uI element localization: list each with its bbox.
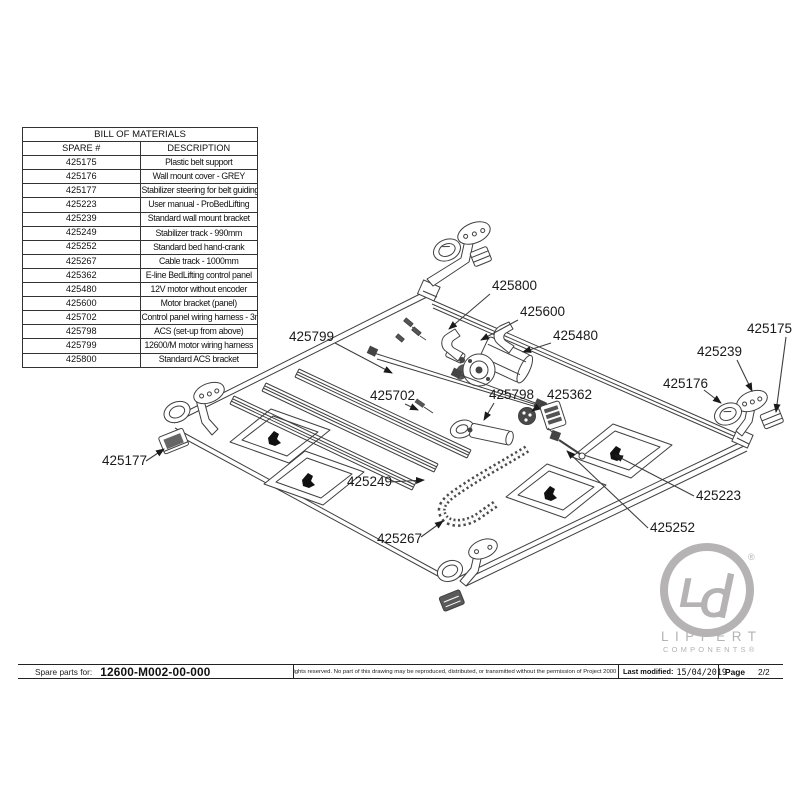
callout-425600: 425600 (520, 304, 565, 319)
screws (396, 318, 426, 342)
leader-line-425175 (776, 337, 786, 412)
exploded-diagram: 4257994258004256004254804257024257984253… (0, 0, 800, 800)
acs-assembly (448, 417, 515, 446)
title-block-footer: Spare parts for: 12600-M002-00-000 All r… (18, 664, 783, 679)
logo-subwordmark: COMPONENTS® (663, 645, 757, 654)
wall-mount-right (711, 386, 784, 436)
callout-425480: 425480 (553, 328, 598, 343)
leader-line-425239 (737, 360, 752, 391)
callout-425176: 425176 (663, 376, 708, 391)
callout-425362: 425362 (547, 387, 592, 402)
callout-425249: 425249 (347, 474, 392, 489)
leader-line-425177 (146, 449, 164, 461)
callout-425177: 425177 (102, 453, 147, 468)
wall-mount-bottom (434, 535, 500, 612)
hand-crank (548, 428, 585, 459)
callout-425702: 425702 (370, 388, 415, 403)
bed-panel-3 (506, 464, 606, 518)
leader-line-425176 (704, 390, 721, 403)
logo-wordmark: LIPPERT (661, 629, 763, 644)
page-label: Page (725, 667, 745, 677)
leader-line-425798 (484, 403, 494, 420)
spare-parts-for-label: Spare parts for: (35, 667, 92, 677)
leader-line-425702 (405, 404, 418, 410)
callout-425252: 425252 (650, 520, 695, 535)
last-modified-label: Last modified: (623, 667, 674, 676)
page-section: Page 2/2 (718, 665, 783, 678)
callout-425799: 425799 (289, 329, 334, 344)
rights-notice: All rights reserved. No part of this dra… (293, 665, 618, 678)
callout-425267: 425267 (377, 531, 422, 546)
callout-425798: 425798 (489, 387, 534, 402)
control-harness-screw (414, 398, 433, 413)
callout-425239: 425239 (697, 344, 742, 359)
logo-registered-mark: ® (748, 552, 755, 562)
last-modified-section: Last modified: 15/04/2019 (618, 665, 718, 678)
leader-line-425267 (421, 521, 443, 537)
lippert-logo: L C ® LIPPERT COMPONENTS® (661, 547, 763, 654)
spare-parts-drawing-page: BILL OF MATERIALS SPARE # DESCRIPTION 42… (0, 0, 800, 800)
page-number: 2/2 (758, 667, 770, 677)
cable-track-chain (442, 449, 527, 523)
wall-mount-left (161, 378, 228, 435)
callout-425800: 425800 (492, 278, 537, 293)
drawing-part-number: 12600-M002-00-000 (100, 665, 210, 679)
wall-mount-top (427, 217, 494, 286)
callout-425175: 425175 (747, 321, 792, 336)
footer-part-section: Spare parts for: 12600-M002-00-000 (18, 665, 293, 678)
leader-line-425799 (335, 343, 392, 373)
callout-425223: 425223 (696, 488, 741, 503)
